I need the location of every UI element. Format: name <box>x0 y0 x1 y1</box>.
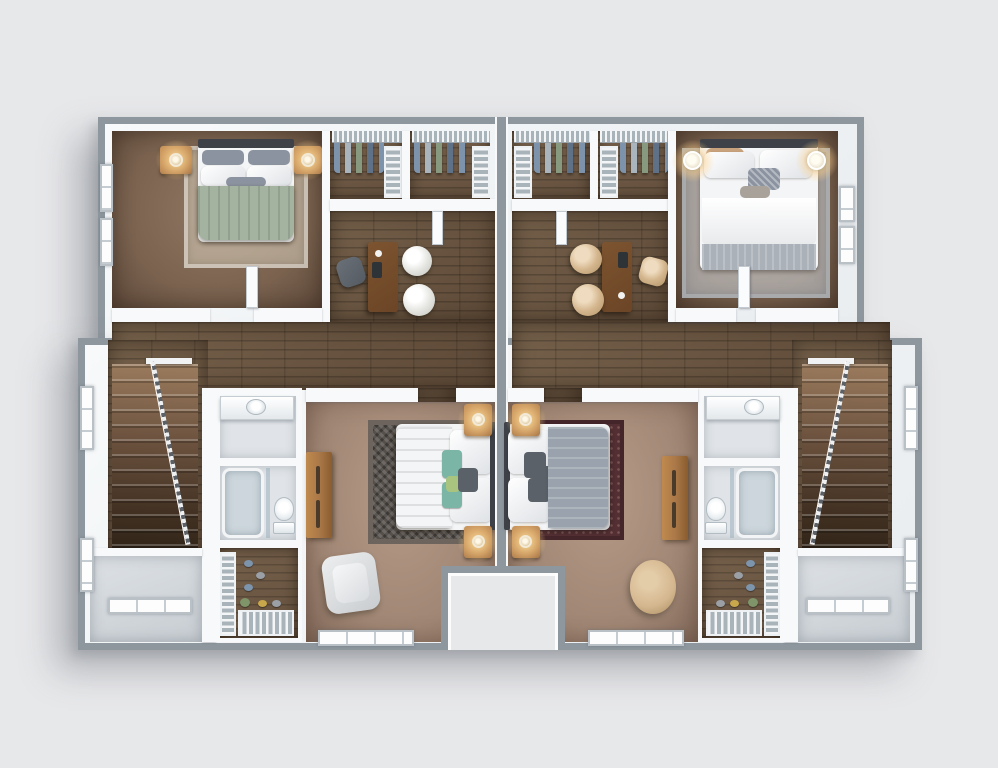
toilet-right <box>706 497 726 521</box>
wall <box>512 199 670 211</box>
candle-lamp-icon <box>472 535 485 548</box>
toilet-tank-left <box>273 522 295 534</box>
guest-chair-beige <box>570 244 602 274</box>
wall <box>798 548 910 556</box>
hanging-clothes <box>414 143 470 173</box>
wall <box>676 308 736 322</box>
bedroom-left-pillow-slate <box>202 150 244 165</box>
entry-notch <box>441 566 565 650</box>
bedroom-left-pillow-slate <box>248 150 290 165</box>
plant-icon <box>240 598 250 607</box>
vanity-right <box>706 396 780 420</box>
wall <box>590 131 598 199</box>
wall <box>330 199 496 211</box>
shoe-icon <box>244 560 253 567</box>
laptop-icon <box>618 252 628 268</box>
shoe-icon <box>716 600 725 607</box>
bathtub-right <box>736 468 778 538</box>
dresser-handle <box>672 470 676 496</box>
shower-glass-left <box>266 468 270 538</box>
bedroom-right-pillow-lumbar <box>740 186 770 198</box>
sink-left <box>246 399 266 415</box>
table-lamp-icon <box>301 153 315 167</box>
closet-rod <box>412 131 490 143</box>
closet-rod <box>600 131 670 143</box>
shoe-icon <box>746 560 755 567</box>
window <box>318 630 414 646</box>
guest-chair-white <box>403 284 435 316</box>
armchair-left-cushion <box>332 562 371 604</box>
wall <box>508 388 698 402</box>
wall <box>322 131 330 322</box>
hanging-clothes <box>620 143 668 173</box>
wall <box>756 308 838 322</box>
candle-lamp-icon <box>519 535 532 548</box>
wall <box>202 388 216 642</box>
shoe-icon <box>734 572 743 579</box>
shoe-shelf <box>220 552 236 636</box>
shoe-shelf <box>472 146 490 198</box>
hanging-clothes <box>534 143 588 173</box>
plant-icon <box>748 598 758 607</box>
shoe-icon <box>258 600 267 607</box>
window <box>588 630 684 646</box>
door-leaf <box>738 266 750 308</box>
candle-lamp-icon <box>519 413 532 426</box>
master-left-pillow-dark <box>458 468 478 492</box>
floor-plan-canvas <box>0 0 998 768</box>
mug-icon <box>375 250 382 257</box>
shoe-shelf <box>238 610 294 636</box>
wall <box>784 388 798 642</box>
wall-lamp-icon <box>683 151 702 170</box>
master-right-door-opening <box>544 388 582 402</box>
dresser-handle <box>672 502 676 528</box>
window <box>108 598 192 614</box>
window <box>904 538 918 592</box>
door-leaf <box>432 211 443 245</box>
shoe-shelf <box>764 552 780 636</box>
window <box>904 386 918 450</box>
guest-chair-white <box>402 246 432 276</box>
window <box>80 386 94 450</box>
toilet-tank-right <box>705 522 727 534</box>
bathtub-left <box>222 468 264 538</box>
window <box>80 538 94 592</box>
shoe-shelf <box>384 146 402 198</box>
shoe-icon <box>730 600 739 607</box>
wall-lamp-icon <box>807 151 826 170</box>
door-leaf <box>246 266 258 308</box>
shoe-icon <box>272 600 281 607</box>
laptop-icon <box>372 262 382 278</box>
bedroom-left-duvet <box>198 186 294 240</box>
wall <box>112 308 210 322</box>
master-right-duvet <box>548 427 608 528</box>
shoe-icon <box>244 584 253 591</box>
sink-right <box>744 399 764 415</box>
closet-rod <box>514 131 590 143</box>
toilet-left <box>274 497 294 521</box>
dresser-handle <box>316 500 320 528</box>
guest-chair-beige <box>572 284 604 316</box>
shoe-shelf <box>706 610 762 636</box>
window <box>839 186 855 222</box>
master-left-door-opening <box>418 388 456 402</box>
bedroom-right-throw <box>702 244 816 270</box>
shoe-shelf <box>514 146 532 198</box>
bedroom-left-headboard <box>198 139 294 148</box>
wall <box>90 548 202 556</box>
wall <box>254 308 322 322</box>
hanging-clothes <box>334 143 384 173</box>
window <box>100 218 113 266</box>
table-lamp-icon <box>169 153 183 167</box>
shoe-icon <box>256 572 265 579</box>
closet-rod <box>332 131 402 143</box>
armchair-right <box>630 560 676 614</box>
mug-icon <box>618 292 625 299</box>
bedroom-right-duvet <box>702 198 816 244</box>
window <box>806 598 890 614</box>
door-leaf <box>556 211 567 245</box>
shoe-shelf <box>600 146 618 198</box>
window <box>839 226 855 264</box>
dresser-handle <box>316 466 320 494</box>
shoe-icon <box>746 584 755 591</box>
wall <box>306 388 496 402</box>
window <box>100 164 113 212</box>
candle-lamp-icon <box>472 413 485 426</box>
shower-glass-right <box>730 468 734 538</box>
wall <box>402 131 410 199</box>
